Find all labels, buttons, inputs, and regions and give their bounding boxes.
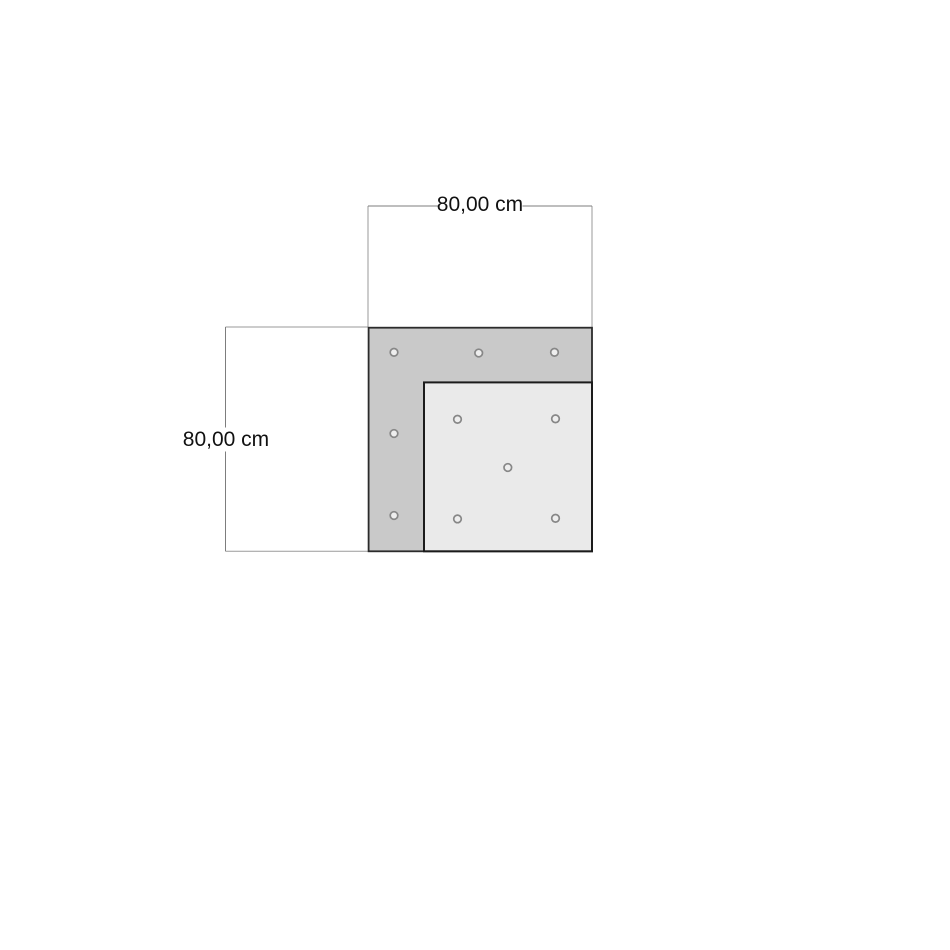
svg-text:80,00 cm: 80,00 cm [437, 193, 523, 216]
svg-text:80,00 cm: 80,00 cm [183, 428, 269, 451]
